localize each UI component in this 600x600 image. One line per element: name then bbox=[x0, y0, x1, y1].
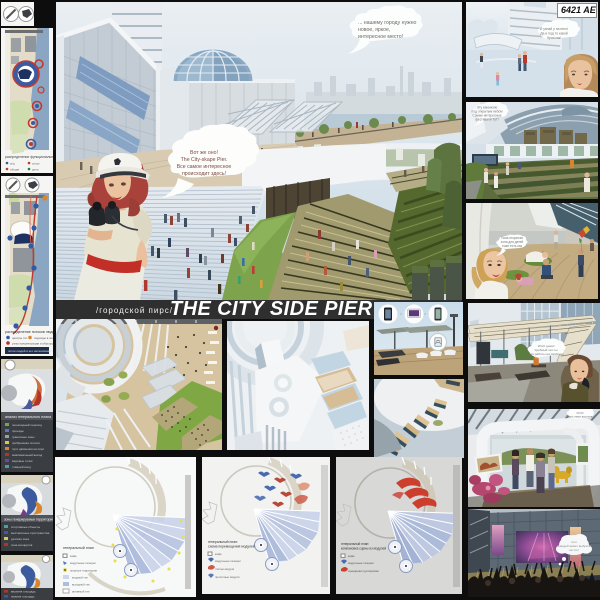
svg-text:кафе: кафе bbox=[348, 554, 355, 558]
svg-text:кафе: кафе bbox=[215, 552, 222, 556]
svg-text:The City-skape Pier.: The City-skape Pier. bbox=[181, 157, 228, 163]
svg-text:верхняя площадь: верхняя площадь bbox=[11, 590, 36, 594]
svg-text:пути движения на пирс: пути движения на пирс bbox=[12, 447, 45, 451]
svg-text:новое, яркое,: новое, яркое, bbox=[358, 27, 390, 33]
svg-text:зона концертов: зона концертов bbox=[11, 543, 33, 547]
svg-text:фестивали ТуТ!: фестивали ТуТ! bbox=[475, 118, 498, 122]
svg-text:нижняя площадь: нижняя площадь bbox=[11, 595, 35, 599]
svg-text:... нашему городу нужно: ... нашему городу нужно bbox=[358, 20, 416, 26]
svg-text:Очень нами вдохновл.: Очень нами вдохновл. bbox=[565, 415, 594, 419]
svg-text:опорные территории: опорные территории bbox=[70, 569, 97, 573]
svg-text:распределение функциональн. зо: распределение функциональн. зон bbox=[5, 155, 53, 159]
svg-text:ж/д: ж/д bbox=[10, 162, 15, 166]
svg-text:на что!: на что! bbox=[569, 548, 579, 552]
svg-text:подходы в зоне: подходы в зоне bbox=[34, 336, 53, 340]
svg-text:тоже есть как: тоже есть как bbox=[502, 244, 523, 248]
svg-text:Красота!: Красота! bbox=[547, 36, 561, 40]
svg-text:спорт: спорт bbox=[32, 162, 40, 166]
svg-text:для работы на свободе!: для работы на свободе! bbox=[529, 352, 564, 356]
svg-text:активный тип: активный тип bbox=[72, 590, 90, 594]
svg-text:птичьи модули: птичьи модули bbox=[215, 567, 235, 571]
svg-text:узлы концентрации и обустройст: узлы концентрации и обустройства bbox=[12, 342, 53, 346]
svg-text:входной тип: входной тип bbox=[72, 576, 88, 580]
svg-text:происходит здесь!: происходит здесь! bbox=[182, 171, 226, 177]
svg-text:граничные зоны: граничные зоны bbox=[12, 435, 34, 439]
svg-text:видовые точки: видовые точки bbox=[12, 459, 33, 463]
svg-text:генеральный план: генеральный план bbox=[63, 546, 94, 550]
svg-text:схема перемещения модулей: схема перемещения модулей bbox=[208, 545, 255, 549]
svg-text:Вот же оно!: Вот же оно! bbox=[190, 150, 218, 156]
svg-text:генеральный план:: генеральный план: bbox=[208, 540, 238, 544]
svg-text:интересное место!: интересное место! bbox=[358, 34, 403, 40]
svg-text:компановка сцены из модулей: компановка сцены из модулей bbox=[341, 547, 386, 551]
svg-text:И узнай у на него!: И узнай у на него! bbox=[540, 27, 568, 31]
svg-text:модульные галереи: модульные галереи bbox=[215, 559, 241, 563]
svg-text:генеральный план:: генеральный план: bbox=[341, 542, 369, 546]
svg-text:выходной тип: выходной тип bbox=[72, 583, 90, 587]
svg-text:распределение потоков людей: распределение потоков людей bbox=[5, 330, 53, 334]
svg-text:модульные галереи: модульные галереи bbox=[348, 561, 374, 565]
svg-text:Да и под то какой: Да и под то какой bbox=[540, 32, 568, 36]
svg-text:проезды: проезды bbox=[12, 429, 24, 433]
svg-text:кафе: кафе bbox=[70, 554, 77, 558]
svg-text:максимальный выход: максимальный выход bbox=[12, 453, 42, 457]
svg-text:сценарная группировка: сценарная группировка bbox=[348, 569, 379, 573]
svg-text:Все самое интересное: Все самое интересное bbox=[177, 164, 232, 170]
svg-text:спортивные объекты: спортивные объекты bbox=[11, 525, 40, 529]
svg-text:детская зона: детская зона bbox=[11, 537, 29, 541]
svg-text:пролетные модули: пролетные модули bbox=[215, 575, 240, 579]
svg-text:главный вход: главный вход bbox=[12, 465, 31, 469]
svg-text:анализ генерального плана: анализ генерального плана bbox=[5, 415, 51, 419]
svg-text:зоны генерируемых территорий: зоны генерируемых территорий bbox=[4, 518, 53, 522]
svg-text:выставочные пространства: выставочные пространства bbox=[11, 531, 50, 535]
svg-text:общая: общая bbox=[10, 168, 20, 172]
svg-text:центры тяг.: центры тяг. bbox=[12, 336, 28, 340]
svg-text:прибрежная полоса: прибрежная полоса bbox=[12, 441, 40, 445]
svg-text:пешеходный переход: пешеходный переход bbox=[12, 423, 42, 427]
svg-text:поток людей и его интенсивност: поток людей и его интенсивность bbox=[8, 349, 53, 353]
svg-text:дети: дети bbox=[32, 168, 39, 172]
svg-text:модульные галереи: модульные галереи bbox=[70, 561, 96, 565]
